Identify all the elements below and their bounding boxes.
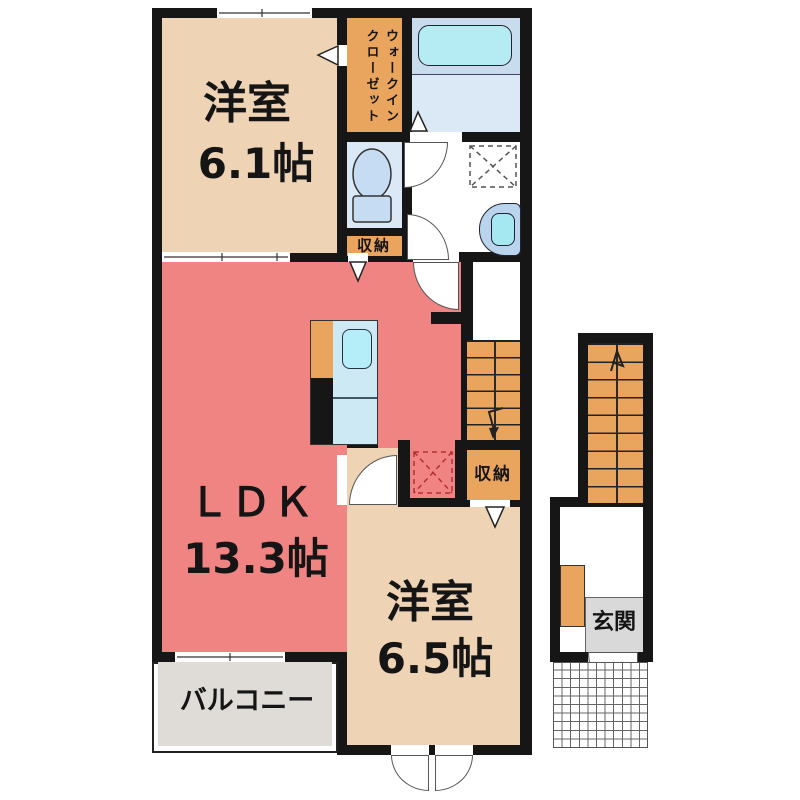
room-ldk-passage xyxy=(378,440,398,448)
stairs-entrance-tower xyxy=(588,343,643,503)
wall-ldk-stub xyxy=(431,312,473,324)
door-arc-terrace-right xyxy=(435,755,473,791)
room-toilet xyxy=(347,142,402,228)
door-opening-wic xyxy=(337,45,347,66)
floorplan-canvas: 洋室 6.1帖 ウォークイン クローゼット 収納 収納 ＬＤＫ 13.3帖 洋室… xyxy=(0,0,800,800)
door-opening-bathroom xyxy=(410,132,462,142)
window-ldk-balcony xyxy=(175,652,285,662)
label-wic-col-right: ウォークイン xyxy=(381,24,401,130)
door-opening-bottom-left xyxy=(391,745,429,755)
label-storage-upper: 収納 xyxy=(357,239,391,254)
door-opening-bedroom-bottom xyxy=(337,455,347,505)
label-balcony: バルコニー xyxy=(180,688,314,715)
door-opening-storage-lower xyxy=(470,500,510,507)
door-opening-bottom-right xyxy=(435,745,473,755)
window-top-bedroom xyxy=(217,8,312,18)
room-bedroom-top xyxy=(162,18,337,253)
bathtub-icon xyxy=(418,25,512,66)
porch-tiles xyxy=(553,662,648,748)
label-bedroom-bottom-size: 6.5帖 xyxy=(377,638,493,680)
label-bedroom-bottom-name: 洋室 xyxy=(386,581,474,625)
label-wic-col-left: クローゼット xyxy=(361,24,381,130)
washbasin-bowl-icon xyxy=(491,213,515,246)
room-bathroom-floor xyxy=(412,75,520,132)
room-ldk-fridge-nook xyxy=(410,440,455,498)
kitchen-unit-outline xyxy=(310,320,378,445)
stairs-main xyxy=(467,340,520,440)
label-ldk-size: 13.3帖 xyxy=(183,538,329,580)
window-bedroom-ldk xyxy=(162,252,290,262)
label-ldk-name: ＬＤＫ xyxy=(189,483,315,523)
label-bedroom-top-size: 6.1帖 xyxy=(198,143,314,185)
label-entrance: 玄関 xyxy=(592,612,636,634)
label-storage-lower: 収納 xyxy=(474,467,512,484)
shoe-cabinet-icon xyxy=(560,565,585,627)
room-corridor xyxy=(473,262,520,340)
door-arc-terrace-left xyxy=(391,755,429,791)
label-walk-in-closet: ウォークイン クローゼット xyxy=(350,24,400,130)
label-bedroom-top-name: 洋室 xyxy=(203,82,291,126)
